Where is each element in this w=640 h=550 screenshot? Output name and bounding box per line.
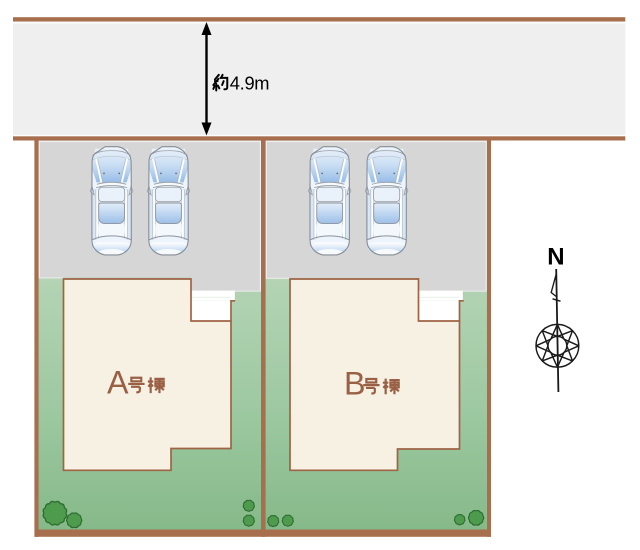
svg-text:B: B [344,366,366,402]
svg-text:A: A [107,364,129,400]
svg-text:N: N [547,243,564,270]
svg-text:4.9m: 4.9m [230,72,270,93]
